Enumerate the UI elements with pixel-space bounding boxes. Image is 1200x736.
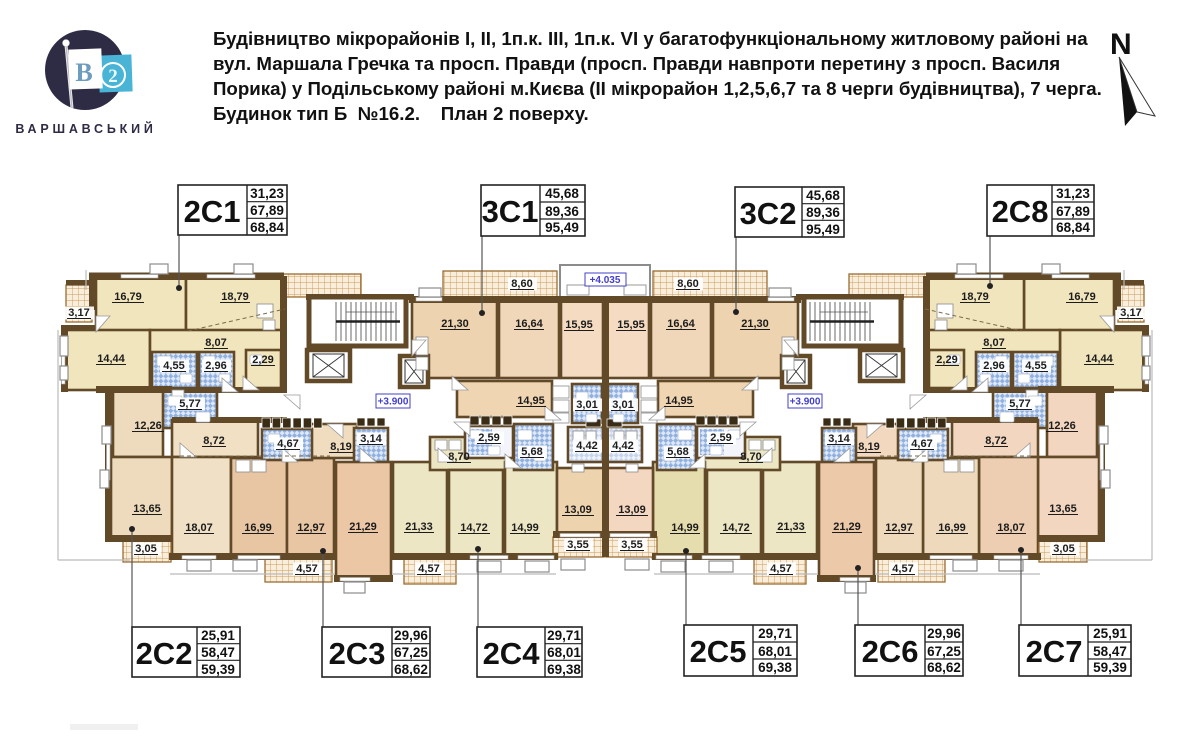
svg-text:4,55: 4,55 <box>163 360 184 372</box>
svg-text:Будівництво мікрорайонів І, ІІ: Будівництво мікрорайонів І, ІІ, 1п.к. ІІ… <box>213 28 1088 49</box>
svg-text:14,72: 14,72 <box>722 522 750 534</box>
svg-text:2С8: 2С8 <box>992 194 1049 229</box>
svg-text:3С2: 3С2 <box>740 196 797 231</box>
svg-text:8,60: 8,60 <box>677 278 698 290</box>
svg-text:18,07: 18,07 <box>185 522 213 534</box>
svg-text:12,97: 12,97 <box>297 522 325 534</box>
svg-text:18,79: 18,79 <box>961 291 989 303</box>
svg-text:5,68: 5,68 <box>521 446 542 458</box>
svg-text:2,96: 2,96 <box>983 360 1004 372</box>
svg-text:3,01: 3,01 <box>612 399 633 411</box>
svg-text:8,70: 8,70 <box>740 451 761 463</box>
svg-text:2С7: 2С7 <box>1026 634 1083 669</box>
svg-text:4,57: 4,57 <box>296 563 317 575</box>
svg-text:25,91: 25,91 <box>1093 626 1127 641</box>
svg-text:2С3: 2С3 <box>329 636 386 671</box>
svg-text:4,55: 4,55 <box>1025 360 1046 372</box>
svg-text:+3.900: +3.900 <box>790 397 821 408</box>
svg-text:68,84: 68,84 <box>1056 220 1090 235</box>
svg-text:2,29: 2,29 <box>936 354 957 366</box>
svg-text:21,30: 21,30 <box>441 318 469 330</box>
svg-text:3С1: 3С1 <box>482 194 539 229</box>
svg-text:29,96: 29,96 <box>394 628 428 643</box>
svg-text:16,79: 16,79 <box>114 291 142 303</box>
svg-text:2: 2 <box>108 66 118 87</box>
svg-text:14,99: 14,99 <box>671 522 699 534</box>
svg-text:21,33: 21,33 <box>777 521 805 533</box>
svg-text:4,67: 4,67 <box>911 438 932 450</box>
svg-text:3,55: 3,55 <box>621 539 642 551</box>
svg-text:16,79: 16,79 <box>1068 291 1096 303</box>
svg-text:3,14: 3,14 <box>828 433 850 445</box>
svg-text:14,44: 14,44 <box>1085 353 1113 365</box>
svg-text:21,33: 21,33 <box>405 521 433 533</box>
svg-text:2,96: 2,96 <box>205 360 226 372</box>
svg-text:59,39: 59,39 <box>201 662 235 677</box>
svg-text:69,38: 69,38 <box>758 660 792 675</box>
svg-text:67,89: 67,89 <box>250 203 284 218</box>
svg-text:95,49: 95,49 <box>806 222 840 237</box>
svg-text:58,47: 58,47 <box>1093 644 1127 659</box>
svg-text:21,30: 21,30 <box>741 318 769 330</box>
svg-text:5,68: 5,68 <box>667 446 688 458</box>
svg-text:вул. Маршала Гречка та просп.: вул. Маршала Гречка та просп. Правди (пр… <box>213 53 1060 74</box>
svg-text:68,84: 68,84 <box>250 220 284 235</box>
svg-text:ВАРШАВСЬКИЙ: ВАРШАВСЬКИЙ <box>15 121 156 136</box>
svg-text:2С1: 2С1 <box>184 194 241 229</box>
svg-text:13,09: 13,09 <box>618 504 646 516</box>
svg-text:16,64: 16,64 <box>667 318 695 330</box>
svg-text:5,77: 5,77 <box>1009 398 1030 410</box>
svg-text:68,62: 68,62 <box>927 660 961 675</box>
svg-text:31,23: 31,23 <box>250 186 284 201</box>
svg-text:89,36: 89,36 <box>806 205 840 220</box>
svg-text:13,09: 13,09 <box>564 504 592 516</box>
svg-text:4,42: 4,42 <box>612 440 633 452</box>
svg-text:13,65: 13,65 <box>1049 503 1077 515</box>
svg-text:2С4: 2С4 <box>483 636 541 671</box>
svg-text:29,71: 29,71 <box>547 628 581 643</box>
svg-text:N: N <box>1110 28 1132 61</box>
svg-text:8,07: 8,07 <box>205 337 226 349</box>
svg-text:3,17: 3,17 <box>1120 307 1141 319</box>
svg-text:8,60: 8,60 <box>511 278 532 290</box>
svg-text:8,70: 8,70 <box>448 451 469 463</box>
svg-text:4,57: 4,57 <box>770 563 791 575</box>
svg-text:67,89: 67,89 <box>1056 204 1090 219</box>
svg-text:12,26: 12,26 <box>1048 420 1076 432</box>
svg-text:2,59: 2,59 <box>478 432 499 444</box>
svg-text:95,49: 95,49 <box>545 220 579 235</box>
svg-text:8,07: 8,07 <box>983 337 1004 349</box>
svg-text:2С5: 2С5 <box>690 634 747 669</box>
svg-text:12,97: 12,97 <box>885 522 913 534</box>
svg-text:58,47: 58,47 <box>201 645 235 660</box>
svg-text:8,72: 8,72 <box>203 435 224 447</box>
svg-text:12,26: 12,26 <box>134 420 162 432</box>
svg-text:67,25: 67,25 <box>927 644 961 659</box>
svg-text:59,39: 59,39 <box>1093 660 1127 675</box>
svg-text:4,42: 4,42 <box>576 440 597 452</box>
svg-text:4,57: 4,57 <box>892 563 913 575</box>
svg-text:14,44: 14,44 <box>97 353 125 365</box>
svg-text:16,99: 16,99 <box>244 522 272 534</box>
svg-text:13,65: 13,65 <box>133 503 161 515</box>
svg-text:89,36: 89,36 <box>545 204 579 219</box>
svg-text:14,95: 14,95 <box>665 395 693 407</box>
svg-text:2С2: 2С2 <box>136 636 193 671</box>
svg-text:68,01: 68,01 <box>758 644 792 659</box>
svg-text:16,64: 16,64 <box>515 318 543 330</box>
svg-text:14,99: 14,99 <box>511 522 539 534</box>
svg-text:8,19: 8,19 <box>858 441 879 453</box>
svg-text:3,05: 3,05 <box>1053 543 1074 555</box>
svg-text:67,25: 67,25 <box>394 645 428 660</box>
svg-text:3,55: 3,55 <box>567 539 588 551</box>
svg-text:21,29: 21,29 <box>833 521 861 533</box>
svg-text:2,59: 2,59 <box>710 432 731 444</box>
svg-text:3,14: 3,14 <box>360 433 382 445</box>
svg-text:8,19: 8,19 <box>330 441 351 453</box>
svg-text:3,05: 3,05 <box>135 543 156 555</box>
svg-text:14,95: 14,95 <box>517 395 545 407</box>
svg-text:14,72: 14,72 <box>460 522 488 534</box>
svg-text:68,01: 68,01 <box>547 645 581 660</box>
svg-text:45,68: 45,68 <box>806 188 840 203</box>
svg-text:68,62: 68,62 <box>394 662 428 677</box>
svg-text:21,29: 21,29 <box>349 521 377 533</box>
svg-text:5,77: 5,77 <box>179 398 200 410</box>
svg-text:4,57: 4,57 <box>418 563 439 575</box>
svg-text:2С6: 2С6 <box>862 634 919 669</box>
svg-text:+4.035: +4.035 <box>590 275 621 286</box>
svg-text:16,99: 16,99 <box>938 522 966 534</box>
svg-text:8,72: 8,72 <box>985 435 1006 447</box>
svg-text:25,91: 25,91 <box>201 628 235 643</box>
svg-text:15,95: 15,95 <box>565 319 593 331</box>
svg-text:69,38: 69,38 <box>547 662 581 677</box>
svg-text:В: В <box>75 58 92 87</box>
svg-text:31,23: 31,23 <box>1056 186 1090 201</box>
svg-text:29,96: 29,96 <box>927 626 961 641</box>
svg-text:15,95: 15,95 <box>617 319 645 331</box>
svg-text:18,07: 18,07 <box>997 522 1025 534</box>
svg-text:3,17: 3,17 <box>68 307 89 319</box>
svg-text:45,68: 45,68 <box>545 186 579 201</box>
svg-text:4,67: 4,67 <box>277 438 298 450</box>
svg-text:3,01: 3,01 <box>576 399 597 411</box>
svg-text:Порика) у Подільському районі: Порика) у Подільському районі м.Києва (І… <box>213 78 1102 99</box>
svg-text:Будинок тип Б №16.2. План: Будинок тип Б №16.2. План 2 поверху. <box>213 103 589 124</box>
svg-text:29,71: 29,71 <box>758 626 792 641</box>
svg-text:18,79: 18,79 <box>221 291 249 303</box>
svg-text:2,29: 2,29 <box>252 354 273 366</box>
svg-text:+3.900: +3.900 <box>378 397 409 408</box>
